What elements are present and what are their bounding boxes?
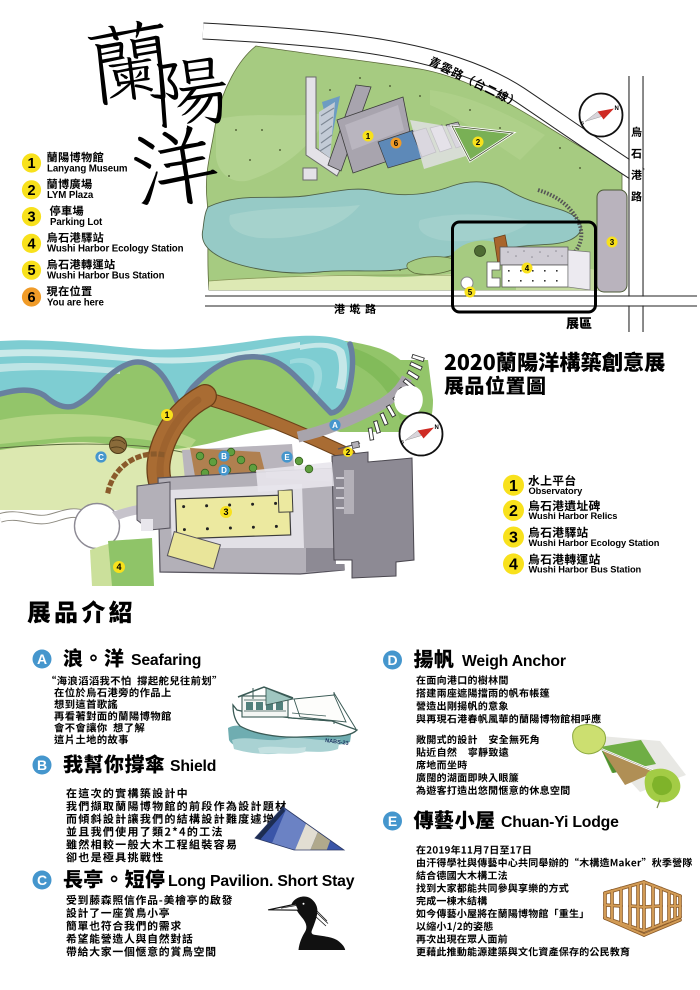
svg-text:Lanyang Museum: Lanyang Museum xyxy=(47,163,128,174)
svg-text:4: 4 xyxy=(509,557,518,574)
svg-text:Observatory: Observatory xyxy=(529,486,584,496)
svg-text:1: 1 xyxy=(366,132,371,141)
svg-text:Weigh Anchor: Weigh Anchor xyxy=(462,653,566,670)
svg-text:N: N xyxy=(435,425,439,431)
svg-text:E: E xyxy=(388,813,397,829)
svg-text:2: 2 xyxy=(346,448,351,457)
svg-text:3: 3 xyxy=(223,507,228,517)
svg-text:Wushi Harbor Ecology Station: Wushi Harbor Ecology Station xyxy=(47,244,184,255)
svg-text:5: 5 xyxy=(27,263,35,279)
svg-text:4: 4 xyxy=(116,562,121,572)
svg-text:Wushi Harbor Bus Station: Wushi Harbor Bus Station xyxy=(47,271,165,282)
svg-text:1: 1 xyxy=(164,410,169,420)
svg-text:C: C xyxy=(37,872,47,888)
svg-text:2: 2 xyxy=(509,503,518,520)
svg-text:Shield: Shield xyxy=(170,758,216,775)
svg-text:D: D xyxy=(387,652,397,668)
svg-text:S: S xyxy=(581,121,584,126)
svg-text:B: B xyxy=(221,452,227,461)
svg-text:B: B xyxy=(37,757,47,773)
svg-text:Chuan-Yi Lodge: Chuan-Yi Lodge xyxy=(501,814,619,831)
svg-text:A: A xyxy=(37,651,47,667)
svg-text:D: D xyxy=(221,466,227,475)
svg-text:N: N xyxy=(615,106,619,112)
svg-text:3: 3 xyxy=(27,210,35,226)
svg-text:A: A xyxy=(332,421,338,430)
svg-text:2: 2 xyxy=(476,138,481,147)
svg-text:Wushi Harbor Relics: Wushi Harbor Relics xyxy=(529,511,618,521)
svg-text:6: 6 xyxy=(394,139,399,148)
svg-text:Long Pavilion. Short Stay: Long Pavilion. Short Stay xyxy=(168,873,355,890)
svg-text:6: 6 xyxy=(27,290,35,306)
svg-text:3: 3 xyxy=(610,238,615,247)
svg-text:1: 1 xyxy=(27,156,35,172)
svg-text:Wushi Harbor Ecology Station: Wushi Harbor Ecology Station xyxy=(529,538,660,548)
svg-text:4: 4 xyxy=(525,264,530,273)
svg-text:Wushi Harbor Bus Station: Wushi Harbor Bus Station xyxy=(529,565,642,575)
svg-text:3: 3 xyxy=(509,530,518,547)
svg-text:4: 4 xyxy=(27,236,35,252)
svg-text:E: E xyxy=(284,453,290,462)
svg-text:1: 1 xyxy=(509,478,518,495)
svg-text:LYM Plaza: LYM Plaza xyxy=(47,190,94,201)
svg-text:Parking Lot: Parking Lot xyxy=(50,217,103,228)
svg-text:C: C xyxy=(98,453,104,462)
svg-text:Seafaring: Seafaring xyxy=(131,652,201,669)
svg-text:5: 5 xyxy=(468,288,473,297)
svg-text:You are here: You are here xyxy=(47,297,104,308)
svg-text:2: 2 xyxy=(27,183,35,199)
svg-text:S: S xyxy=(401,440,404,445)
